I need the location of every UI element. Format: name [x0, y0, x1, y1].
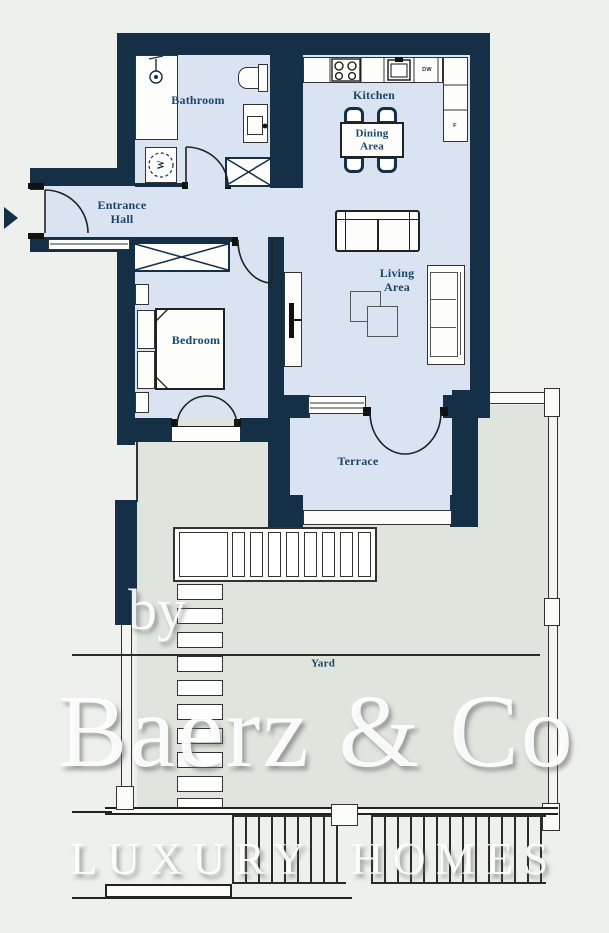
- shelf-divider-1: [430, 299, 456, 300]
- fence-post-mid-right: [544, 598, 560, 626]
- shelf-rail-1: [457, 272, 458, 355]
- watermark-brand: Baerz & Co: [58, 672, 575, 791]
- deck-big-slab: [179, 532, 228, 577]
- deck-slat: [177, 656, 223, 672]
- watermark-tagline: LUXURY HOMES: [70, 833, 558, 885]
- terrace-label: Terrace: [338, 455, 379, 469]
- yard-left-edge-line: [136, 442, 138, 502]
- toilet-bowl: [238, 67, 259, 89]
- deck-slat: [322, 532, 335, 577]
- wall-bedroom-bottom-left: [117, 418, 172, 442]
- entrance-door-jamb-bottom: [28, 233, 44, 239]
- washer-label: W: [156, 161, 166, 170]
- dishwasher-label: DW: [422, 67, 432, 73]
- bedroom-door-threshold: [172, 426, 240, 442]
- living-window: [308, 396, 366, 414]
- wall-bathroom-kitchen: [270, 55, 303, 188]
- sofa: [335, 210, 420, 252]
- sofa-armrest-left: [337, 212, 346, 250]
- bathroom-label: Bathroom: [171, 94, 224, 108]
- deck-slat: [250, 532, 263, 577]
- yard-bottom-wall-left-line: [72, 811, 112, 813]
- kitchen-counter-right: [443, 57, 468, 142]
- bedroom-french-hinge-right: [234, 419, 241, 427]
- terrace-french-hinge-left: [363, 407, 371, 416]
- terrace-step: [303, 510, 452, 525]
- deck-row: [173, 527, 377, 582]
- terrace-french-hinge-right: [440, 407, 448, 416]
- wall-hall-top: [30, 168, 135, 186]
- dining-area-label: Dining Area: [356, 127, 389, 152]
- fridge-label: F: [453, 123, 457, 129]
- fence-post-top-right: [544, 388, 560, 417]
- entrance-hall-label: Entrance Hall: [98, 199, 147, 227]
- sofa-armrest-right: [409, 212, 418, 250]
- bedroom-closet: [133, 242, 230, 272]
- yard-boundary-line: [72, 654, 540, 656]
- deck-slat: [232, 532, 245, 577]
- wall-bathroom-hall-thin: [135, 183, 185, 187]
- wall-terrace-bottom-left: [278, 495, 303, 527]
- deck-slat: [358, 532, 371, 577]
- deck-slat: [304, 532, 317, 577]
- wall-left-bedroom: [117, 252, 135, 445]
- wall-bedroom-living-divider: [268, 237, 284, 418]
- shelf-divider-2: [430, 327, 456, 328]
- wall-top: [117, 33, 490, 55]
- wall-terrace-bottom-right: [450, 495, 478, 527]
- entrance-arrow-icon: [4, 207, 18, 229]
- dining-chair-bottom-right: [377, 156, 397, 173]
- deck-slat: [286, 532, 299, 577]
- kitchen-label: Kitchen: [353, 89, 395, 103]
- entrance-door-jamb-top: [28, 183, 44, 189]
- sofa-cushion-divider: [377, 219, 379, 250]
- yard-bottom-line: [72, 897, 352, 899]
- shelf-unit: [427, 265, 465, 365]
- bed-pillow-top: [137, 310, 155, 349]
- nightstand-bottom: [135, 392, 149, 413]
- bathroom-door-jamb-left: [182, 182, 188, 189]
- bathroom-closet: [225, 157, 272, 187]
- wall-left-bathroom: [117, 33, 135, 168]
- deck-slat: [268, 532, 281, 577]
- bedroom-door-hinge: [232, 237, 238, 246]
- living-area-label: Living Area: [380, 267, 415, 295]
- bedroom-french-hinge-left: [171, 419, 178, 427]
- bedroom-label: Bedroom: [172, 334, 221, 348]
- dining-chair-bottom-left: [344, 156, 364, 173]
- hall-window: [48, 239, 130, 250]
- tv: [289, 303, 294, 338]
- bathroom-sink: [247, 116, 263, 135]
- bed: [155, 308, 225, 390]
- wall-right: [470, 33, 490, 415]
- fence-post-bottom-mid: [331, 804, 358, 826]
- yard-label: Yard: [311, 658, 335, 671]
- yard-bottom-band: [105, 884, 232, 898]
- shelf-inner: [430, 272, 458, 357]
- deck-slat: [340, 532, 353, 577]
- watermark-by: by: [128, 576, 186, 643]
- shelf-rail-2: [460, 272, 461, 355]
- nightstand-top: [135, 284, 149, 305]
- floor-plan: Bathroom Kitchen Dining Area Entrance Ha…: [0, 0, 609, 933]
- coffee-table-2: [367, 306, 398, 337]
- bed-pillow-bottom: [137, 351, 155, 389]
- toilet-tank: [258, 64, 268, 92]
